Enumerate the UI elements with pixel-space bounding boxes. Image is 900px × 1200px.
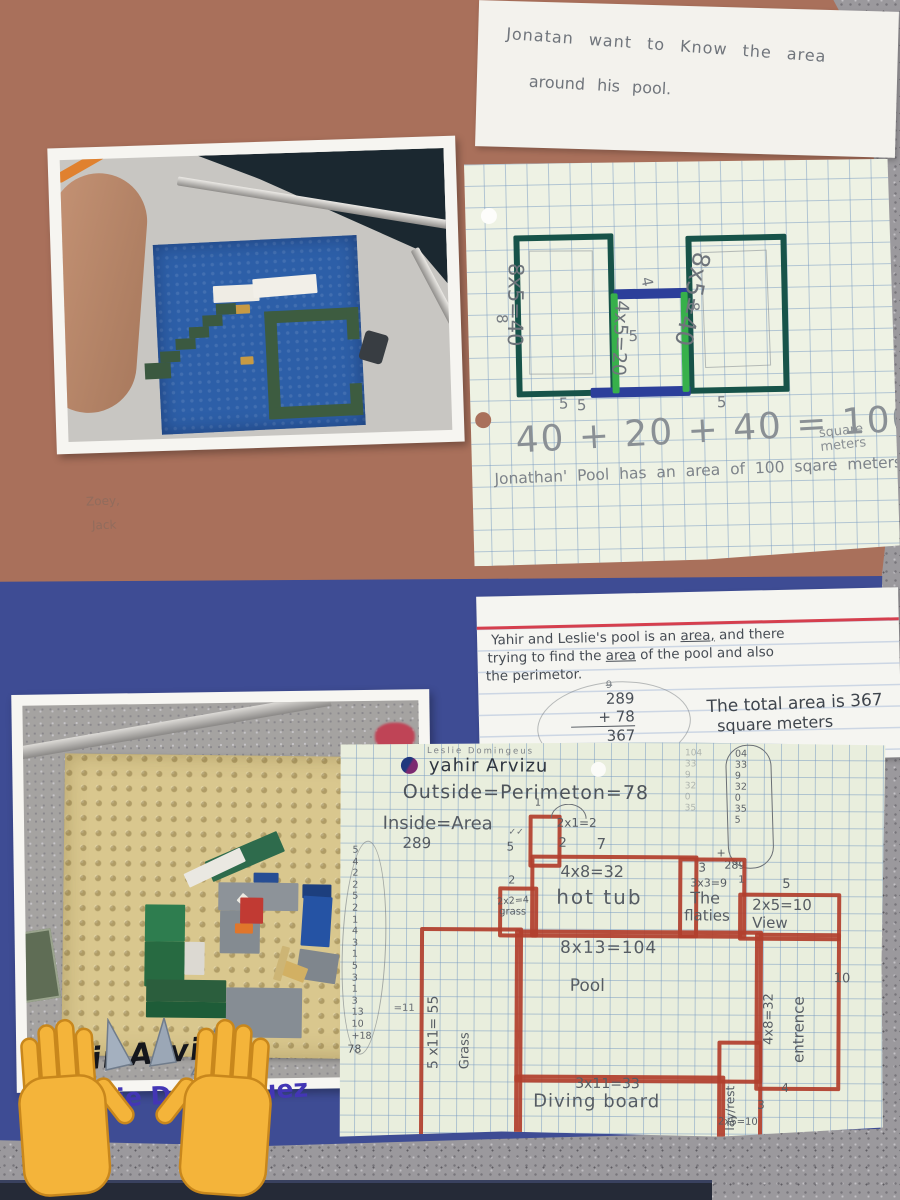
lego-brick-green bbox=[160, 351, 181, 363]
addition-work: 9 289 + 78 367 bbox=[570, 689, 635, 745]
lego-brick-red bbox=[240, 897, 263, 923]
worksheet-bottom-graph-paper: Leslie Domingeus yahir Arvizu Outside=Pe… bbox=[337, 741, 887, 1142]
lego-brick-green bbox=[175, 338, 196, 350]
dimension-label: 8 bbox=[493, 314, 511, 324]
lego-brick-white bbox=[184, 942, 204, 975]
unit-word: meters bbox=[820, 436, 867, 455]
region-equation: 2x5=10 bbox=[718, 1117, 758, 1128]
dimension-label: 7 bbox=[596, 835, 606, 853]
worksheet-top-graph-paper: 8x5=40 4x5=20 8x5=40 8 5 4 5 8 5 5 40 + … bbox=[462, 156, 900, 567]
region-equation: 8x13=104 bbox=[560, 938, 657, 959]
area-value: 289 bbox=[402, 834, 431, 852]
faint-addition-column: 104 33 9 32 0 35 bbox=[685, 748, 703, 814]
area-label-left: 8x5=40 bbox=[503, 263, 528, 347]
pencil-oval bbox=[725, 744, 775, 869]
dimension-label: 8 bbox=[685, 302, 703, 312]
dimension-label: 5 bbox=[782, 877, 790, 892]
dimension-label: 4 bbox=[781, 1081, 789, 1095]
lego-brick-green bbox=[145, 904, 185, 941]
region-equation: 3x11=33 bbox=[575, 1076, 640, 1092]
pool-left-rectangle bbox=[513, 233, 616, 397]
blue-lego-baseplate bbox=[153, 235, 366, 435]
dimension-label: 2 bbox=[558, 836, 566, 851]
region-name: Grass bbox=[457, 993, 472, 1069]
dimension-label: 5 bbox=[506, 839, 514, 853]
region-name: entrence bbox=[789, 951, 808, 1063]
dimension-label: 1 bbox=[535, 798, 541, 809]
note-line: Jonatan want to Know the area bbox=[506, 24, 827, 66]
lego-brick-white bbox=[252, 274, 317, 298]
area-statement: Inside=Area bbox=[383, 813, 493, 835]
region-name: flaties bbox=[684, 906, 730, 924]
student-name: yahir Arvizu bbox=[429, 755, 549, 777]
perimeter-addition-column: 5 4 2 2 5 2 1 4 3 1 5 3 1 3 13 10 +18 bbox=[351, 845, 372, 1042]
region-equation: 2x5=10 bbox=[752, 896, 812, 914]
lego-outline-stub bbox=[346, 307, 360, 340]
pool-middle-bottom-edge bbox=[591, 386, 691, 398]
perimeter-total: 78 bbox=[347, 1043, 361, 1056]
hole-punch bbox=[481, 208, 497, 224]
addend: 289 bbox=[570, 689, 634, 708]
region-name: Diving board bbox=[533, 1091, 660, 1113]
dimension-label: 5 bbox=[577, 396, 587, 414]
lego-brick-orange bbox=[235, 923, 253, 933]
dot-sticker-icon bbox=[401, 757, 418, 774]
lego-brick-green bbox=[202, 315, 223, 327]
eraser bbox=[358, 330, 389, 366]
lego-outline-top bbox=[264, 307, 358, 324]
addend: + 78 bbox=[571, 707, 635, 726]
dimension-label: 3 bbox=[757, 1098, 765, 1112]
note-text: trying to find the bbox=[487, 648, 606, 667]
dimension-label: 1 bbox=[738, 875, 744, 886]
area-addition-column: 04 33 9 32 0 35 5 bbox=[735, 749, 747, 826]
dimension-label: 5 bbox=[628, 327, 638, 345]
region-equation: 2x1=2 bbox=[557, 816, 597, 830]
photo-print-blue-baseplate bbox=[47, 136, 464, 455]
region-name: The bbox=[690, 888, 720, 907]
note-text: of the pool and also bbox=[636, 644, 775, 663]
lego-outline-left bbox=[264, 311, 281, 419]
problem-note-top: Jonatan want to Know the area around his… bbox=[475, 0, 899, 158]
lego-brick-green bbox=[146, 1001, 238, 1018]
pool-middle-top-edge bbox=[613, 288, 687, 300]
lego-brick-blue bbox=[300, 896, 332, 948]
region-name: Pool bbox=[570, 976, 605, 996]
region-name: View bbox=[752, 914, 788, 932]
desk-surface: Zoey, Jack Jonatan want to Know the area… bbox=[0, 0, 900, 1200]
total-area-units: square meters bbox=[717, 712, 834, 736]
lego-brick-green bbox=[189, 326, 210, 338]
lego-brick-green bbox=[146, 979, 226, 1002]
note-text-underlined: area, bbox=[680, 627, 715, 644]
faint-pencil-name: Zoey, bbox=[86, 493, 120, 508]
lego-brick-tan bbox=[240, 356, 253, 365]
region-name: grass bbox=[499, 906, 526, 917]
region-equation: 4x8=32 bbox=[761, 965, 776, 1045]
lego-outline-bottom bbox=[269, 403, 363, 420]
note-text-underlined: area bbox=[606, 647, 636, 664]
equation-units: square meters bbox=[818, 422, 867, 455]
dimension-label: 5 bbox=[559, 394, 569, 412]
note-text: Yahir and Leslie's pool is an bbox=[491, 628, 681, 648]
hole-punch bbox=[591, 762, 606, 777]
note-line: the perimetor. bbox=[486, 666, 583, 684]
tan-lego-baseplate bbox=[61, 753, 365, 1059]
paper-scrap bbox=[22, 928, 61, 1003]
dimension-label: 2 bbox=[508, 873, 515, 886]
note-line: around his pool. bbox=[528, 72, 671, 99]
note-text: and there bbox=[715, 626, 785, 644]
lego-brick-green bbox=[145, 362, 172, 379]
perimeter-statement: Outside=Perimeton=78 bbox=[403, 781, 649, 804]
student-arm bbox=[60, 170, 151, 416]
dimension-label: 10 bbox=[834, 971, 851, 986]
problem-note-bottom: Yahir and Leslie's pool is an area, and … bbox=[476, 587, 900, 767]
lego-outline-stub bbox=[350, 383, 364, 416]
carry-digit: 9 bbox=[606, 680, 613, 691]
check-marks: ✓✓ bbox=[509, 827, 524, 837]
photo-image bbox=[60, 148, 453, 442]
region-equation: 5 x11= 55 bbox=[425, 957, 442, 1069]
region-equation: 4x8=32 bbox=[560, 862, 624, 881]
faint-pencil-name: Jack bbox=[92, 518, 117, 533]
margin-note: =11 bbox=[394, 1003, 415, 1014]
dimension-label: 4 bbox=[637, 275, 657, 288]
region-name: hot tub bbox=[556, 885, 642, 909]
lego-brick-blue bbox=[254, 873, 279, 883]
raised-hands-emoji-icon bbox=[0, 1018, 290, 1200]
hole-punch bbox=[475, 412, 491, 428]
lego-brick-green bbox=[216, 303, 237, 315]
dimension-label: 3 bbox=[698, 860, 706, 874]
